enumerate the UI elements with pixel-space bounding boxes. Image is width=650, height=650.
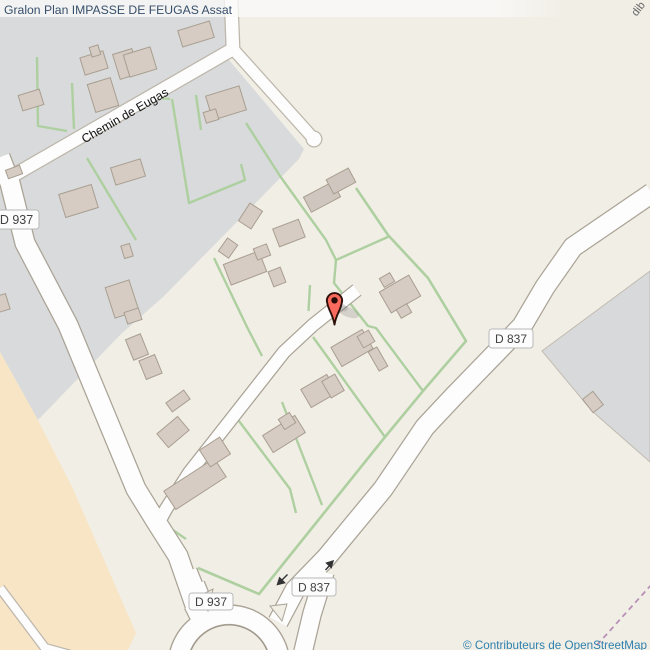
svg-text:D 937: D 937 [195,595,227,609]
svg-text:D 837: D 837 [495,332,527,346]
svg-text:© Contributeurs de OpenStreetM: © Contributeurs de OpenStreetMap [463,639,648,650]
svg-text:D 937: D 937 [0,213,33,227]
svg-text:D 837: D 837 [298,580,330,594]
svg-text:Gralon Plan IMPASSE DE FEUGAS: Gralon Plan IMPASSE DE FEUGAS Assat [4,3,233,17]
